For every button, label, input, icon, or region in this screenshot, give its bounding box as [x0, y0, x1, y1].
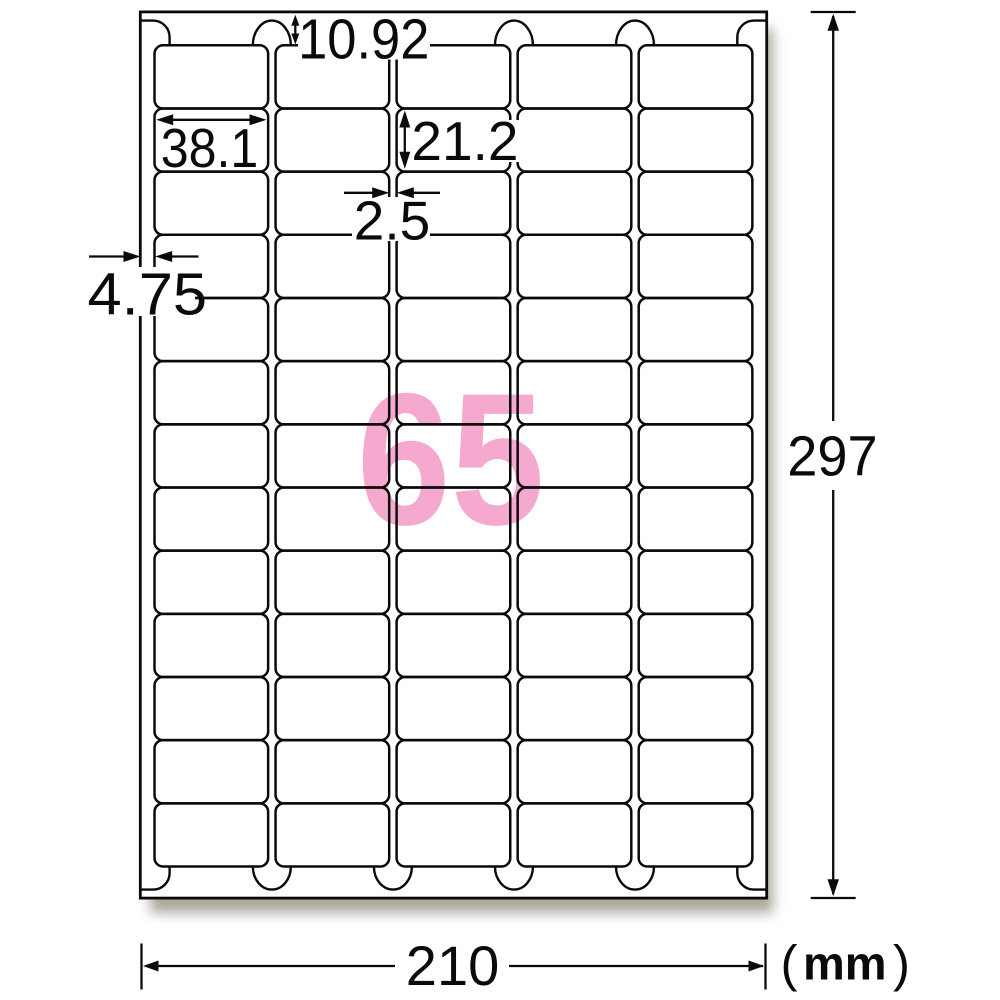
svg-text:10.92: 10.92: [298, 8, 429, 72]
svg-text:4.75: 4.75: [88, 261, 208, 327]
svg-text:(: (: [781, 935, 798, 992]
svg-text:): ): [893, 935, 910, 992]
svg-text:210: 210: [406, 934, 499, 997]
svg-text:21.2: 21.2: [411, 110, 518, 172]
svg-text:mm: mm: [803, 937, 887, 990]
svg-text:38.1: 38.1: [161, 117, 259, 179]
svg-text:2.5: 2.5: [354, 189, 430, 251]
svg-text:297: 297: [787, 424, 877, 488]
